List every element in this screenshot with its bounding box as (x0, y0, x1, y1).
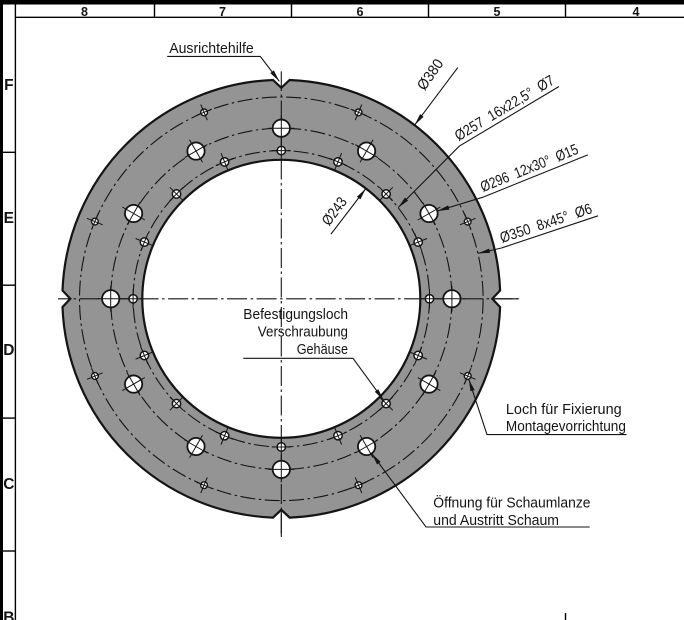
svg-text:F: F (4, 77, 13, 94)
svg-text:Öffnung für Schaumlanze: Öffnung für Schaumlanze (433, 494, 590, 512)
svg-text:E: E (4, 210, 14, 227)
svg-text:Befestigungsloch: Befestigungsloch (243, 306, 348, 323)
svg-text:Loch für Fixierung: Loch für Fixierung (506, 401, 622, 418)
svg-text:B: B (3, 610, 14, 620)
svg-text:D: D (3, 342, 14, 359)
svg-text:6: 6 (357, 5, 364, 19)
svg-text:C: C (3, 476, 14, 493)
svg-text:und Austritt Schaum: und Austritt Schaum (433, 512, 559, 529)
svg-text:Gehäuse: Gehäuse (297, 341, 348, 358)
svg-text:Ausrichtehilfe: Ausrichtehilfe (169, 40, 254, 57)
svg-text:8: 8 (81, 5, 88, 19)
svg-text:4: 4 (633, 5, 640, 19)
svg-text:7: 7 (219, 5, 226, 19)
svg-text:Montagevorrichtung: Montagevorrichtung (506, 418, 626, 435)
svg-text:5: 5 (494, 5, 501, 19)
svg-text:Verschraubung: Verschraubung (258, 323, 348, 340)
